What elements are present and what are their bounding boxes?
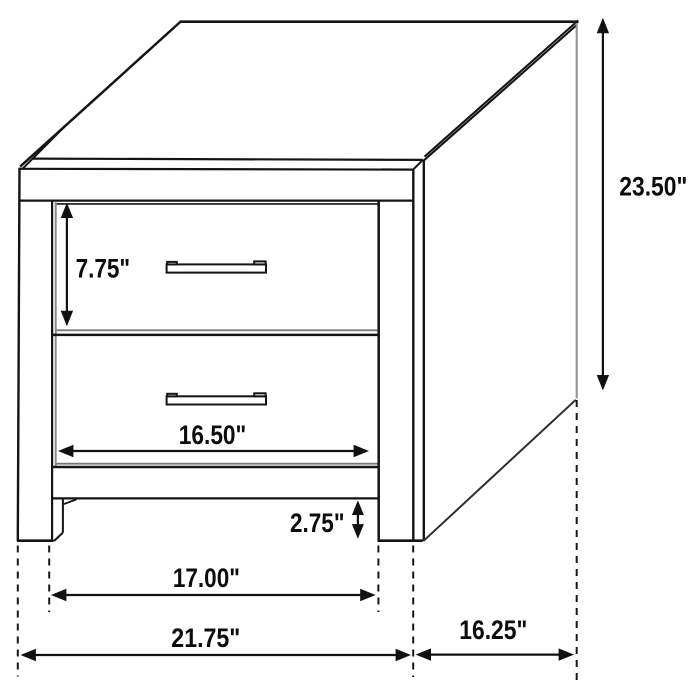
svg-text:7.75": 7.75" (76, 254, 131, 284)
svg-text:2.75": 2.75" (290, 508, 345, 538)
svg-text:16.50": 16.50" (179, 420, 247, 450)
svg-text:16.25": 16.25" (459, 615, 527, 645)
svg-text:23.50": 23.50" (619, 172, 687, 202)
svg-text:21.75": 21.75" (171, 623, 240, 653)
svg-text:17.00": 17.00" (173, 563, 240, 593)
